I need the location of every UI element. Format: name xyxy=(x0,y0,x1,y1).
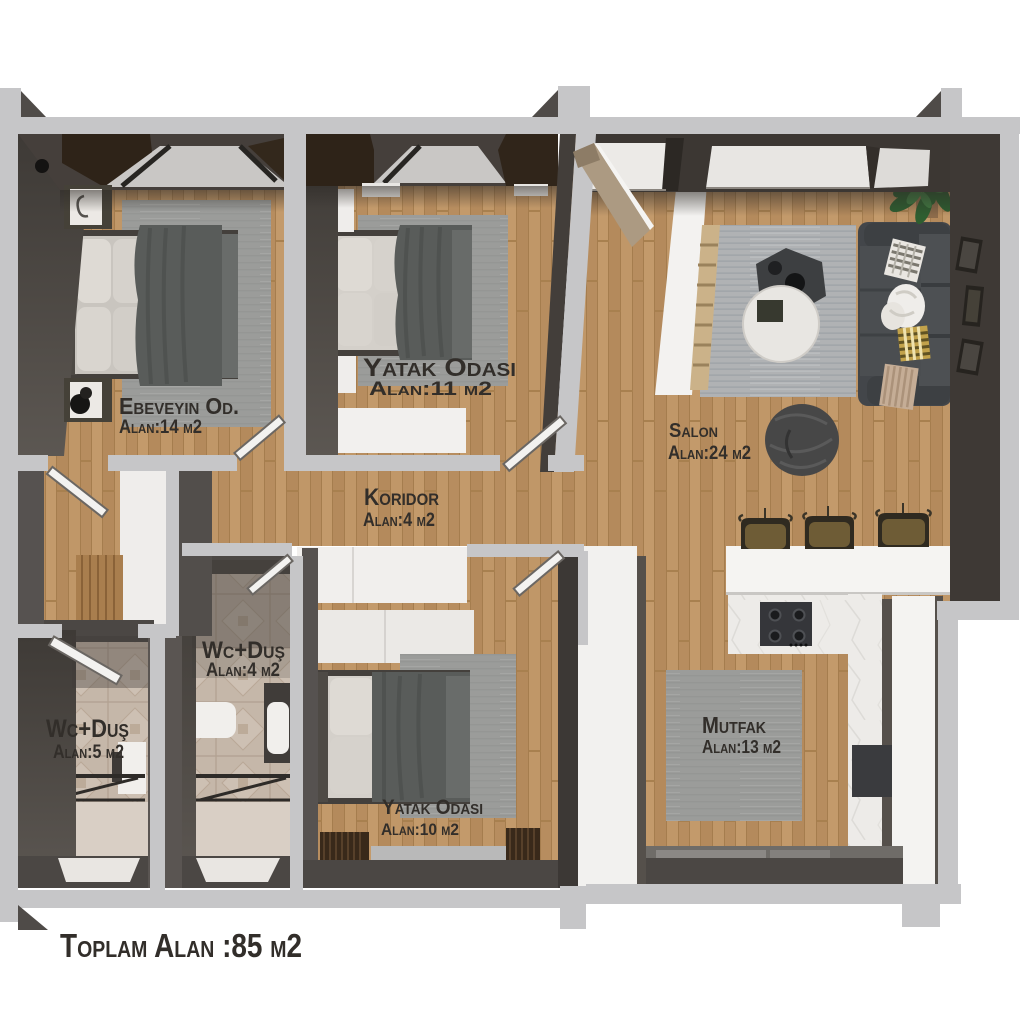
svg-text:Wc+Duş: Wc+Duş xyxy=(46,715,129,743)
svg-text:Alan:13 м2: Alan:13 м2 xyxy=(702,737,781,757)
svg-text:Yatak Odası: Yatak Odası xyxy=(363,354,516,382)
svg-text:Alan:4 м2: Alan:4 м2 xyxy=(363,510,435,531)
svg-text:Ebeveyin Od.: Ebeveyin Od. xyxy=(119,393,239,419)
svg-text:Yatak Odası: Yatak Odası xyxy=(382,796,483,819)
svg-text:Alan:10 м2: Alan:10 м2 xyxy=(381,820,459,839)
svg-text:Alan:24 м2: Alan:24 м2 xyxy=(668,443,751,464)
svg-text:Alan:4 м2: Alan:4 м2 xyxy=(206,660,280,681)
svg-text:Mutfak: Mutfak xyxy=(702,712,766,738)
svg-text:Salon: Salon xyxy=(669,420,718,442)
svg-text:Alan:5 м2: Alan:5 м2 xyxy=(53,742,124,763)
svg-text:Alan:11 м2: Alan:11 м2 xyxy=(369,379,492,400)
svg-text:Alan:14 м2: Alan:14 м2 xyxy=(119,417,202,438)
svg-text:Koridor: Koridor xyxy=(364,484,439,511)
svg-text:Toplam Alan :85 м2: Toplam Alan :85 м2 xyxy=(60,927,302,964)
